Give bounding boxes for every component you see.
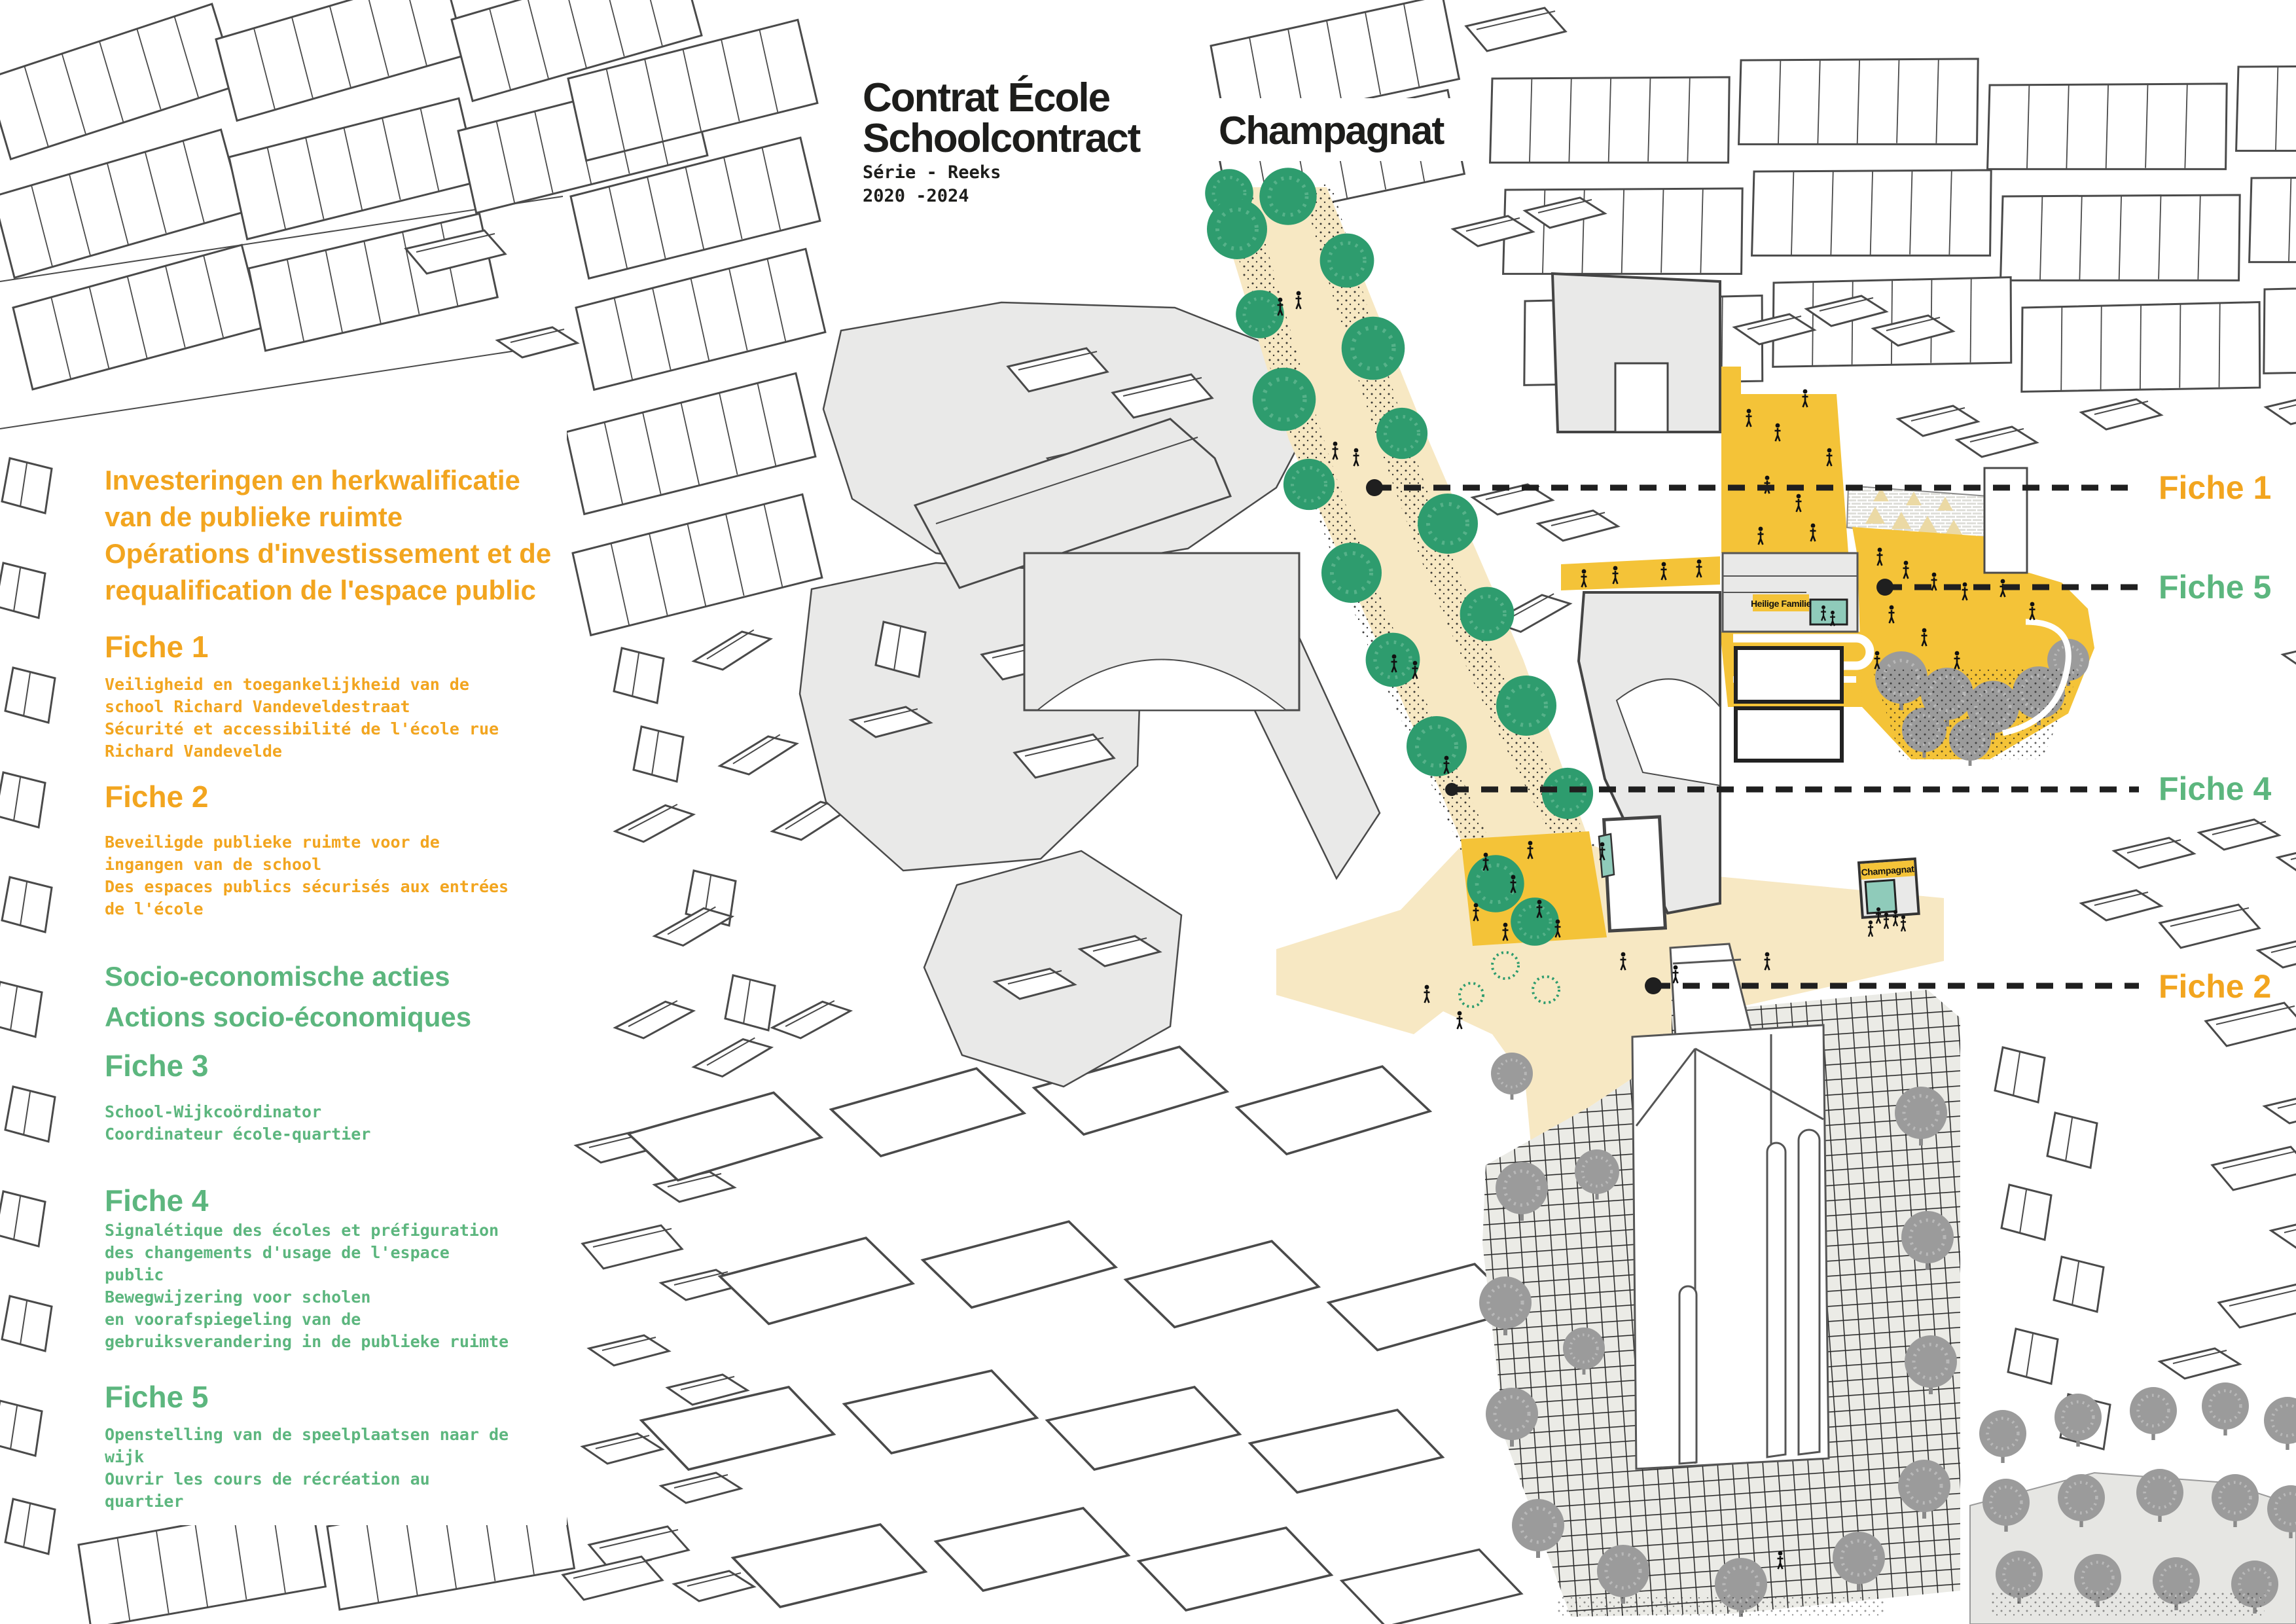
legend-fiche1-title: Fiche 1 [105, 630, 209, 664]
map-label-fiche5: Fiche 5 [2159, 569, 2271, 605]
legend-fiche1-line: Sécurité et accessibilité de l'école rue [105, 719, 499, 738]
legend-fiche4-line: des changements d'usage de l'espace [105, 1243, 450, 1262]
legend-fiche3-line: School-Wijkcoördinator [105, 1102, 321, 1121]
legend-fiche4-line: en voorafspiegeling van de [105, 1310, 361, 1329]
legend: Investeringen en herkwalificatie van de … [72, 419, 567, 1525]
legend-socio-header-2: Actions socio-économiques [105, 1001, 471, 1032]
legend-fiche5-line: Openstelling van de speelplaatsen naar d… [105, 1425, 509, 1444]
map-label-fiche2: Fiche 2 [2159, 968, 2271, 1005]
legend-fiche3-line: Coordinateur école-quartier [105, 1125, 370, 1144]
legend-fiche4-line: Signalétique des écoles et préfiguration [105, 1221, 499, 1240]
legend-fiche3-title: Fiche 3 [105, 1049, 209, 1083]
legend-fiche4-line: public [105, 1265, 164, 1284]
legend-fiche1-line: Richard Vandevelde [105, 742, 282, 761]
champagnat-courtyard [1865, 880, 1896, 913]
new-building-2 [1736, 708, 1842, 761]
legend-fiche4-line: Bewegwijzering voor scholen [105, 1288, 370, 1307]
legend-fiche4-line: gebruiksverandering in de publieke ruimt… [105, 1332, 509, 1351]
legend-fiche2-line: ingangen van de school [105, 855, 321, 874]
heilige-familie-courtyard [1810, 600, 1847, 624]
legend-fiche5-line: wijk [105, 1447, 144, 1466]
champagnat-building: Champagnat [1859, 859, 1919, 918]
legend-fiche2-line: Des espaces publics sécurisés aux entrée… [105, 877, 509, 896]
axonometric-map: Heilige Familie Champagnat [0, 0, 2296, 1624]
legend-public-header-2: van de publieke ruimte [105, 501, 403, 532]
legend-socio-header-1: Socio-economische acties [105, 961, 450, 992]
heilige-familie-label: Heilige Familie [1751, 598, 1812, 609]
title-line1: Contrat École [863, 75, 1110, 120]
new-building-1 [1736, 648, 1842, 702]
title-series-line2: 2020 -2024 [863, 186, 969, 206]
project-name: Champagnat [1219, 109, 1444, 153]
title-series-line1: Série - Reeks [863, 162, 1001, 183]
legend-fiche2-line: de l'école [105, 899, 204, 918]
legend-fiche1-line: Veiligheid en toegankelijkheid van de [105, 675, 469, 694]
legend-fiche5-line: quartier [105, 1492, 183, 1511]
title-line2: Schoolcontract [863, 116, 1141, 161]
legend-fiche4-title: Fiche 4 [105, 1183, 209, 1218]
legend-fiche2-title: Fiche 2 [105, 780, 209, 814]
legend-public-header-1: Investeringen en herkwalificatie [105, 465, 520, 496]
legend-public-header-4: requalification de l'espace public [105, 575, 536, 605]
legend-fiche5-title: Fiche 5 [105, 1380, 209, 1414]
legend-fiche1-line: school Richard Vandeveldestraat [105, 697, 410, 716]
legend-public-header-3: Opérations d'investissement et de [105, 538, 551, 569]
legend-fiche5-line: Ouvrir les cours de récréation au [105, 1470, 430, 1489]
legend-fiche2-line: Beveiligde publieke ruimte voor de [105, 833, 440, 852]
map-label-fiche4: Fiche 4 [2159, 770, 2271, 807]
map-label-fiche1: Fiche 1 [2159, 469, 2271, 506]
